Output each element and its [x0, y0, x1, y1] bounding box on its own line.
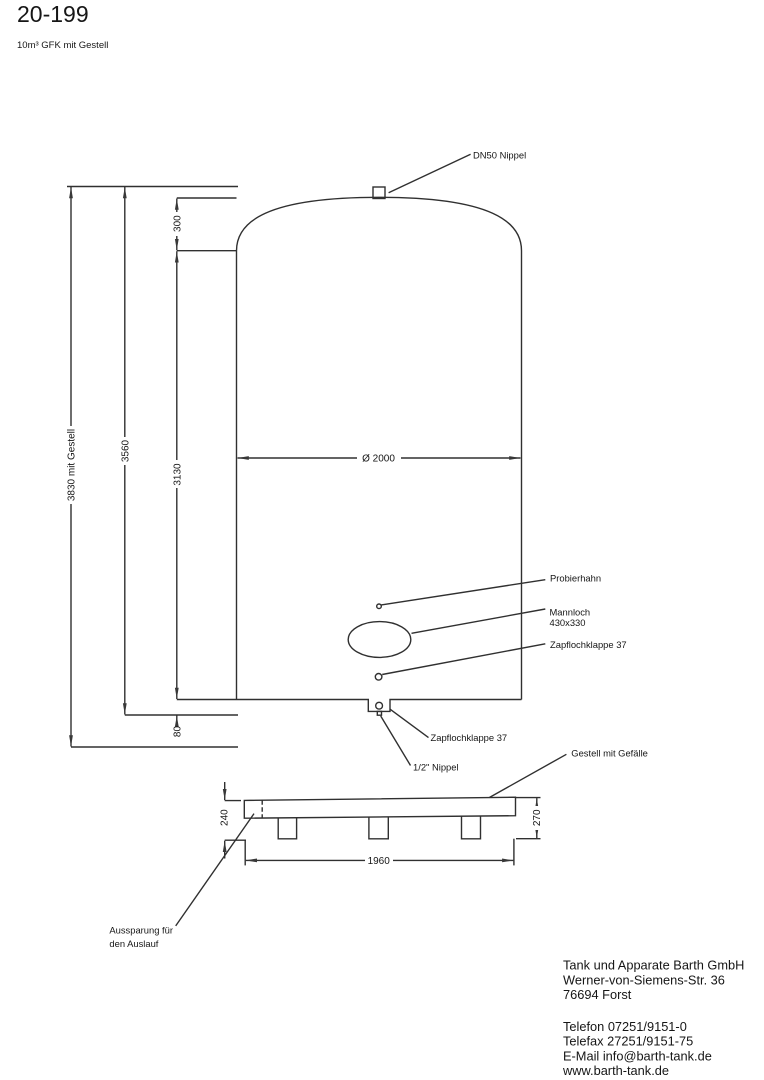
svg-text:76694 Forst: 76694 Forst: [563, 987, 632, 1002]
svg-text:Zapflochklappe 37: Zapflochklappe 37: [550, 639, 627, 650]
svg-text:DN50 Nippel: DN50 Nippel: [473, 149, 526, 160]
svg-text:300: 300: [172, 215, 183, 232]
svg-text:Telefon 07251/9151-0: Telefon 07251/9151-0: [563, 1019, 687, 1034]
svg-text:270: 270: [532, 809, 543, 826]
svg-text:Aussparung für: Aussparung für: [109, 924, 173, 935]
svg-text:240: 240: [220, 809, 231, 826]
svg-text:1/2" Nippel: 1/2" Nippel: [413, 762, 459, 773]
svg-text:10m³ GFK mit Gestell: 10m³ GFK mit Gestell: [17, 40, 108, 51]
svg-text:Werner-von-Siemens-Str. 36: Werner-von-Siemens-Str. 36: [563, 973, 725, 988]
svg-text:430x330: 430x330: [550, 617, 586, 628]
svg-text:Zapflochklappe 37: Zapflochklappe 37: [431, 732, 508, 743]
svg-text:3130: 3130: [172, 463, 183, 486]
svg-text:E-Mail info@barth-tank.de: E-Mail info@barth-tank.de: [563, 1049, 712, 1064]
svg-text:20-199: 20-199: [17, 1, 89, 27]
svg-text:Mannloch: Mannloch: [550, 607, 591, 618]
svg-text:Probierhahn: Probierhahn: [550, 573, 601, 584]
svg-text:3560: 3560: [120, 439, 131, 462]
svg-text:3830 mit Gestell: 3830 mit Gestell: [67, 429, 78, 501]
svg-text:80: 80: [173, 726, 184, 738]
svg-text:den Auslauf: den Auslauf: [109, 938, 158, 949]
svg-text:Tank und Apparate Barth GmbH: Tank und Apparate Barth GmbH: [563, 958, 744, 973]
svg-text:1960: 1960: [368, 856, 391, 867]
svg-text:Ø 2000: Ø 2000: [362, 454, 395, 465]
svg-text:www.barth-tank.de: www.barth-tank.de: [562, 1063, 669, 1078]
svg-text:Telefax 27251/9151-75: Telefax 27251/9151-75: [563, 1034, 693, 1049]
svg-text:Gestell mit Gefälle: Gestell mit Gefälle: [571, 747, 648, 758]
